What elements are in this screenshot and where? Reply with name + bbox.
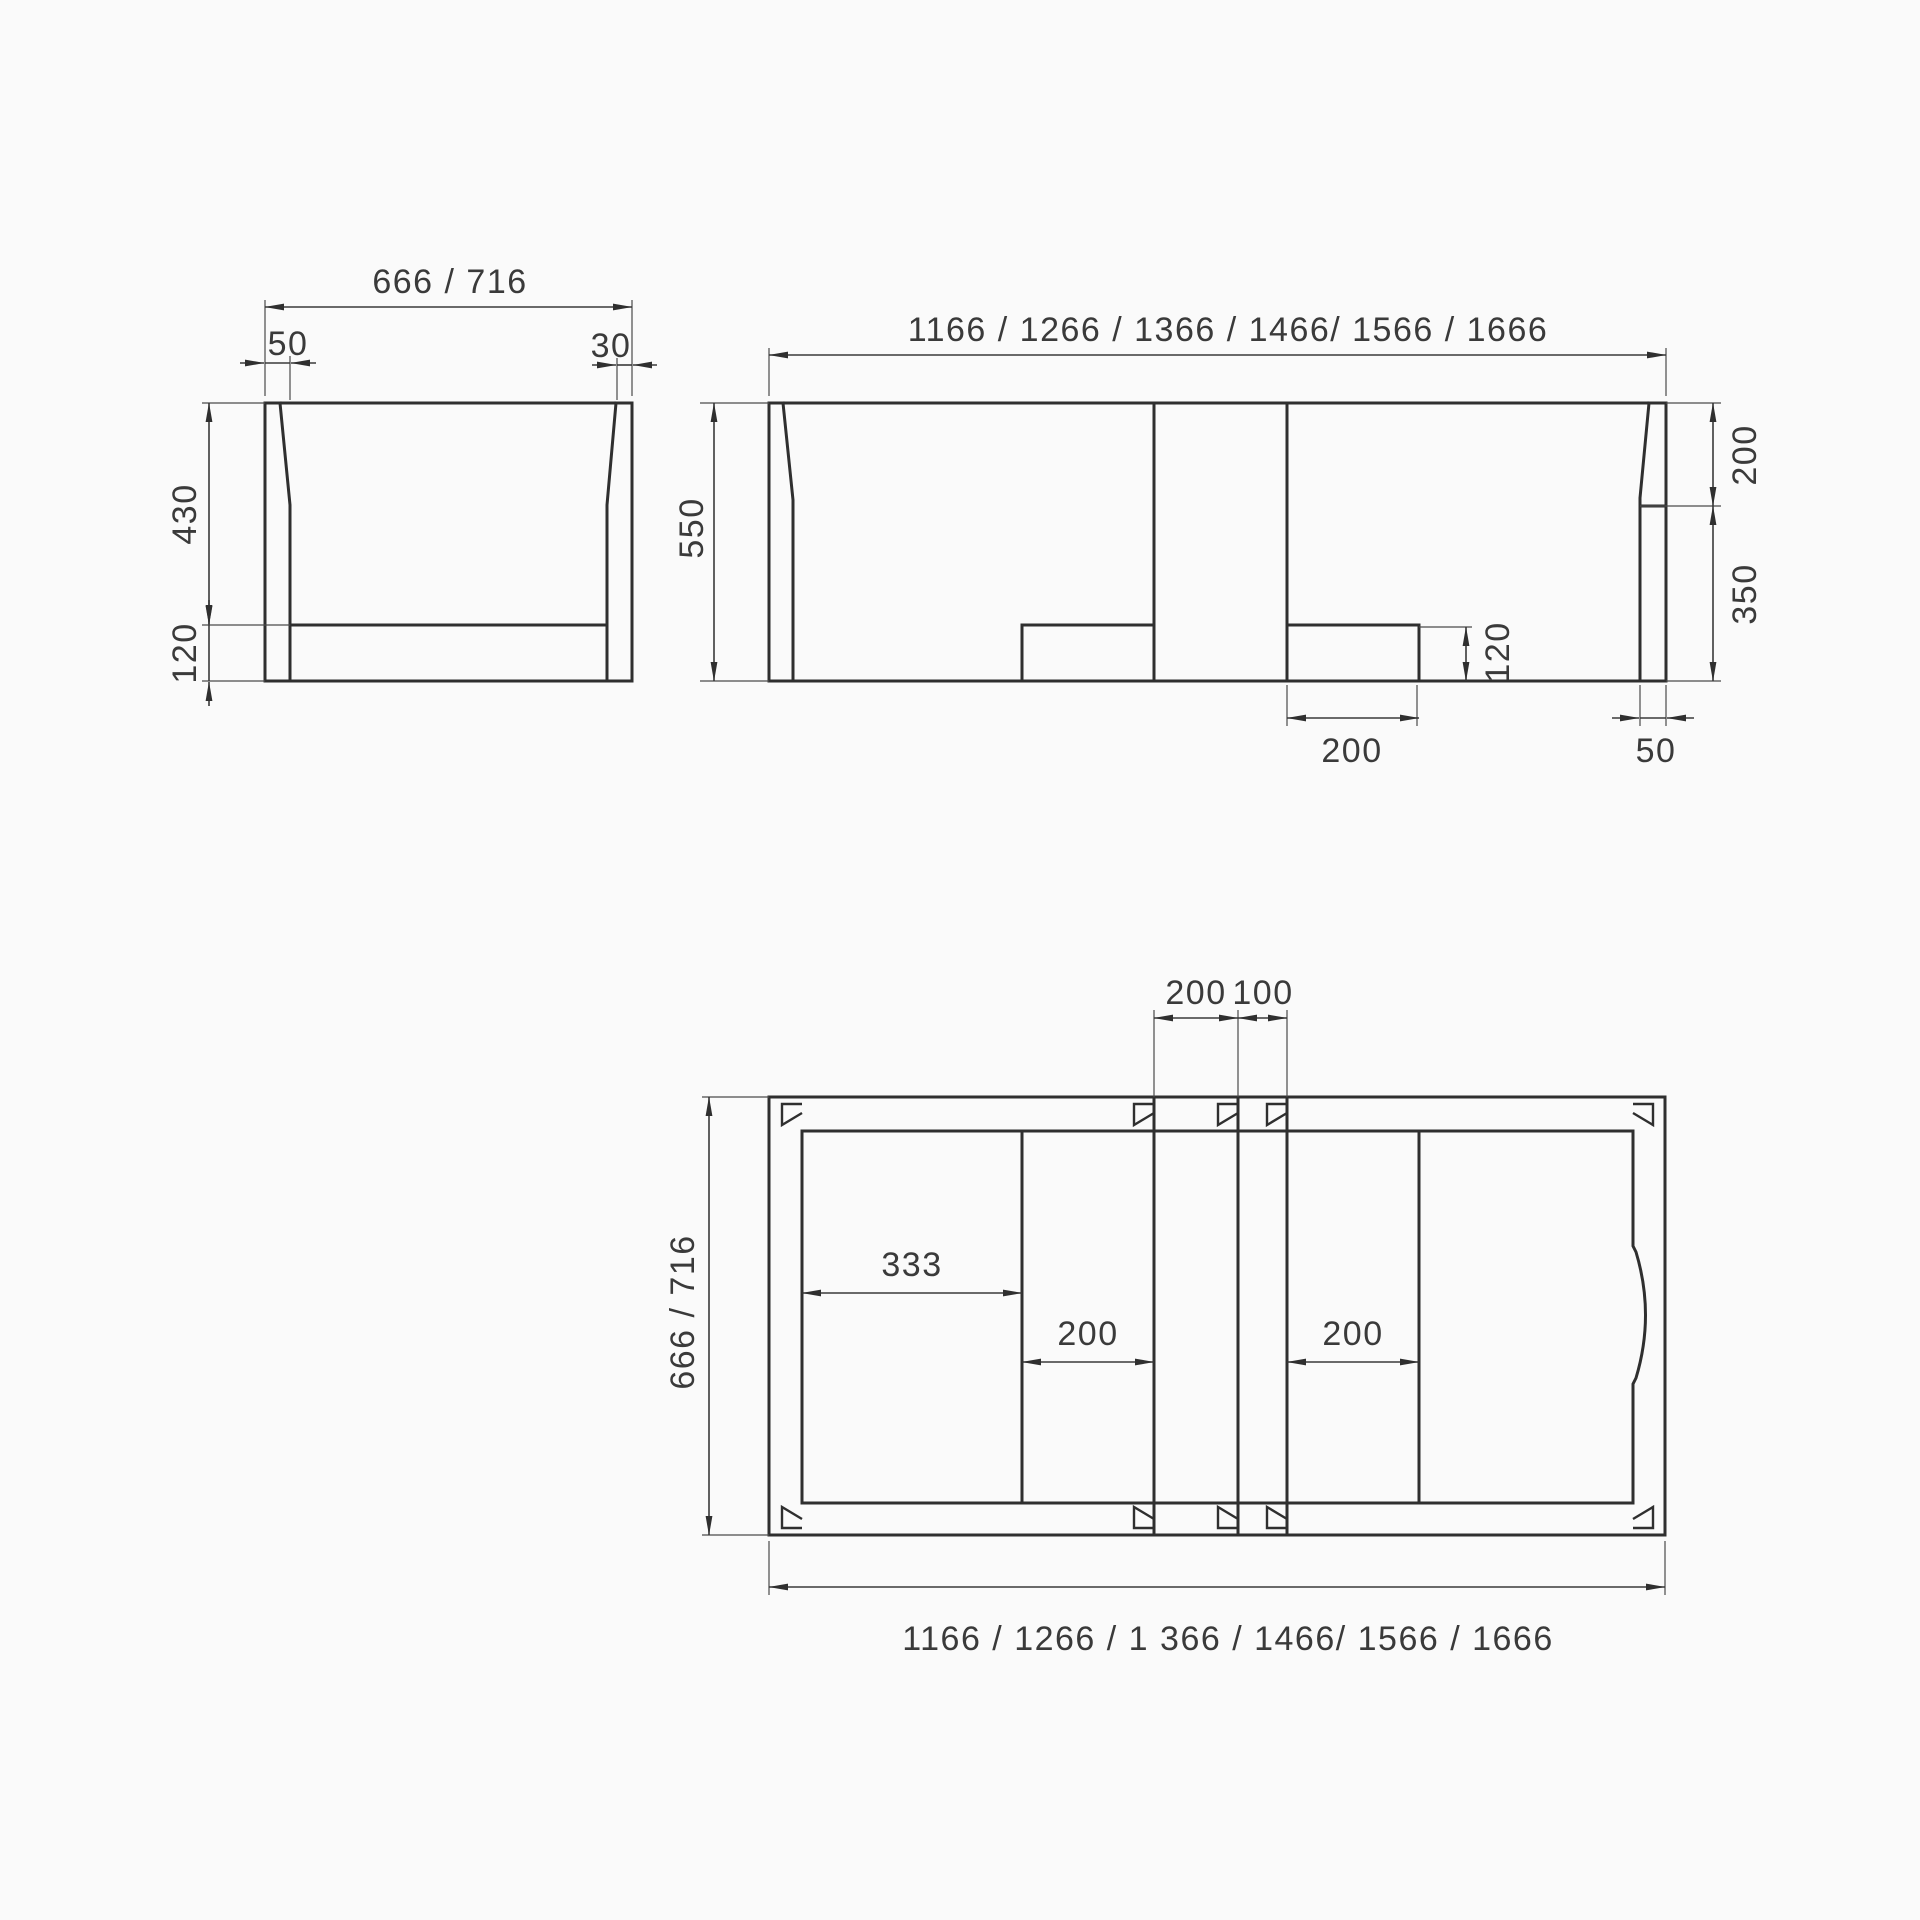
front-view: 1166 / 1266 / 1366 / 1466/ 1566 / 1666 5… (673, 311, 1764, 770)
plan-depth-label: 666 / 716 (664, 1234, 702, 1389)
side-view: 666 / 716 50 30 430 120 (166, 263, 657, 706)
plan-view: 200 100 333 200 200 666 / 716 1166 / 126… (664, 974, 1665, 1658)
side-wall-left-label: 50 (268, 325, 309, 363)
front-view-extension-lines (700, 348, 1721, 726)
side-view-outline (265, 403, 632, 681)
drawing-canvas: 666 / 716 50 30 430 120 1166 / 1266 / 13… (0, 0, 1920, 1920)
plan-gap-right-label: 100 (1232, 974, 1293, 1012)
side-width-label: 666 / 716 (372, 263, 527, 301)
front-right-upper-label: 200 (1726, 424, 1764, 485)
front-step-height-label: 120 (1479, 621, 1517, 682)
front-right-lower-label: 350 (1726, 563, 1764, 624)
plan-right-seat-label: 200 (1322, 1315, 1383, 1353)
side-upper-height-label: 430 (166, 483, 204, 544)
front-width-label: 1166 / 1266 / 1366 / 1466/ 1566 / 1666 (908, 311, 1549, 349)
technical-drawing-page: 666 / 716 50 30 430 120 1166 / 1266 / 13… (0, 0, 1920, 1920)
plan-clip-notches (782, 1104, 1653, 1528)
plan-width-label: 1166 / 1266 / 1 366 / 1466/ 1566 / 1666 (902, 1620, 1554, 1658)
front-view-outline (769, 403, 1666, 681)
plan-view-outline (769, 1097, 1665, 1535)
plan-gap-left-label: 200 (1165, 974, 1226, 1012)
plan-left-seat-label: 200 (1057, 1315, 1118, 1353)
front-step-width-label: 200 (1321, 732, 1382, 770)
front-wall-label: 50 (1636, 732, 1677, 770)
front-height-label: 550 (673, 497, 711, 558)
plan-offset-label: 333 (881, 1246, 942, 1284)
side-lower-height-label: 120 (166, 622, 204, 683)
side-wall-right-label: 30 (591, 327, 632, 365)
